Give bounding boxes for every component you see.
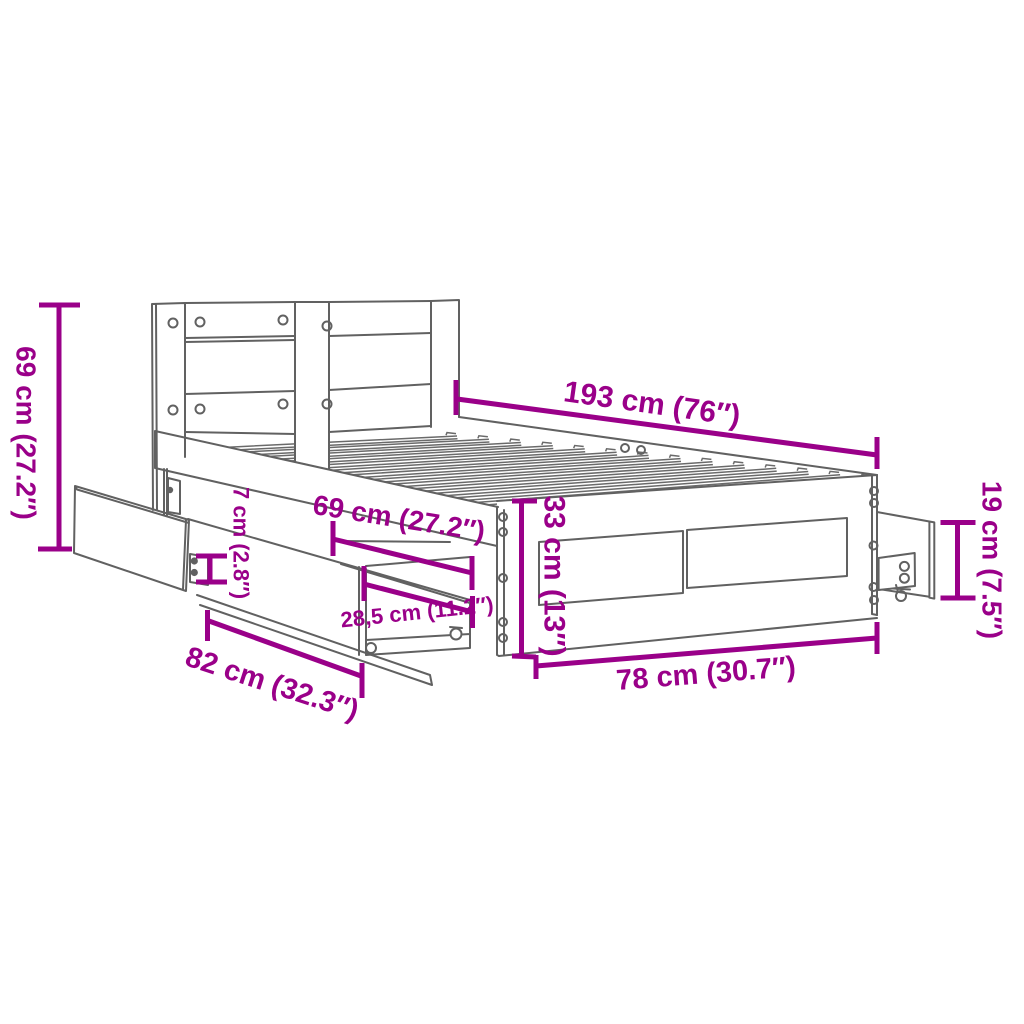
- svg-text:33 cm (13″): 33 cm (13″): [538, 495, 571, 656]
- svg-text:69 cm (27.2″): 69 cm (27.2″): [11, 346, 42, 520]
- svg-text:7 cm (2.8″): 7 cm (2.8″): [229, 487, 254, 599]
- svg-text:19 cm (7.5″): 19 cm (7.5″): [977, 481, 1008, 639]
